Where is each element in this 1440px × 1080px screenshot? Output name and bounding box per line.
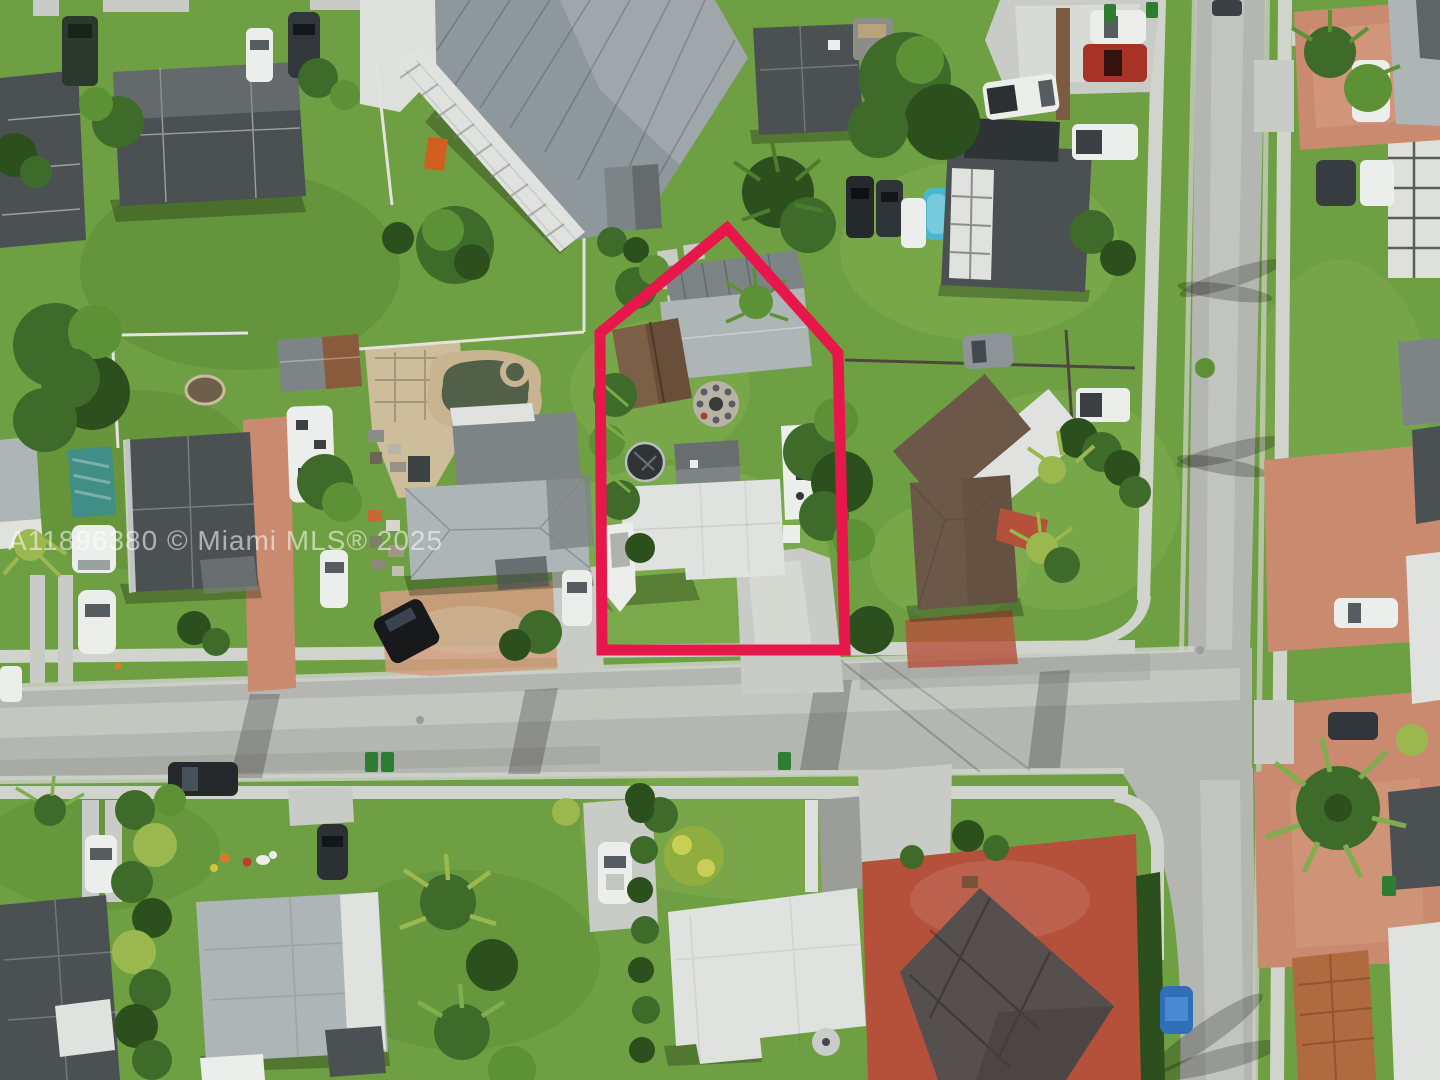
- trash-bin: [1104, 4, 1116, 22]
- car-blue: [1160, 986, 1193, 1034]
- truck-partial-left-road: [0, 666, 22, 702]
- suv-dark-b: [876, 180, 903, 237]
- car-gray: [962, 332, 1014, 369]
- suv-dark-a: [846, 176, 874, 238]
- house-top-mid: [750, 24, 864, 144]
- shed-left: [277, 334, 362, 392]
- car-white-topleft: [246, 28, 273, 82]
- shed-gray: [604, 164, 662, 232]
- van-white: [901, 198, 926, 248]
- trash-bin: [381, 752, 394, 772]
- car-white-topright: [1090, 10, 1146, 44]
- paver-path-top-right: [1388, 128, 1440, 278]
- aerial-photo: A11896380 © Miami MLS® 2025: [0, 0, 1440, 1080]
- screen-roof-section: [949, 168, 994, 280]
- pickup-white-right: [1360, 160, 1394, 206]
- truck-dark-green: [62, 16, 98, 86]
- car-partial-top: [1212, 0, 1242, 16]
- suv-dark-right: [1316, 160, 1356, 206]
- house-bottom-center-left: [196, 892, 390, 1080]
- car-dark-bottomleft: [317, 824, 348, 880]
- trash-bin: [365, 752, 378, 772]
- tree-round-left: [416, 206, 494, 284]
- garden-circle: [186, 376, 224, 404]
- teal-canopy: [68, 447, 117, 518]
- small-shed-white: [783, 525, 800, 543]
- cone: [115, 663, 122, 670]
- mls-watermark: A11896380 © Miami MLS® 2025: [8, 525, 443, 556]
- gazebo-roof: [325, 1026, 386, 1077]
- fire-pit: [693, 381, 739, 427]
- suv-dark-lowright: [1328, 712, 1378, 740]
- house-bottom-left: [0, 895, 120, 1080]
- car-white-by-property: [562, 570, 592, 626]
- aerial-photo-canvas: A11896380 © Miami MLS® 2025: [0, 0, 1440, 1080]
- car-white-midright: [1334, 598, 1398, 628]
- car-white-left: [78, 590, 116, 654]
- pickup-white-mid: [1072, 124, 1138, 160]
- trash-bin: [1146, 2, 1158, 18]
- pickup-white-small: [1076, 388, 1130, 422]
- truck-red: [1083, 44, 1147, 82]
- white-trailer: [200, 1054, 265, 1080]
- house-left-mid: [120, 432, 262, 604]
- trash-bin: [778, 752, 791, 770]
- hedge-right-of-court: [1136, 872, 1165, 1080]
- car-white-centerleft: [320, 550, 348, 608]
- house-top-left: [110, 62, 306, 222]
- suv-white-bottom: [598, 842, 632, 904]
- house-orange-roof: [1292, 950, 1376, 1080]
- trash-bin: [1382, 876, 1396, 896]
